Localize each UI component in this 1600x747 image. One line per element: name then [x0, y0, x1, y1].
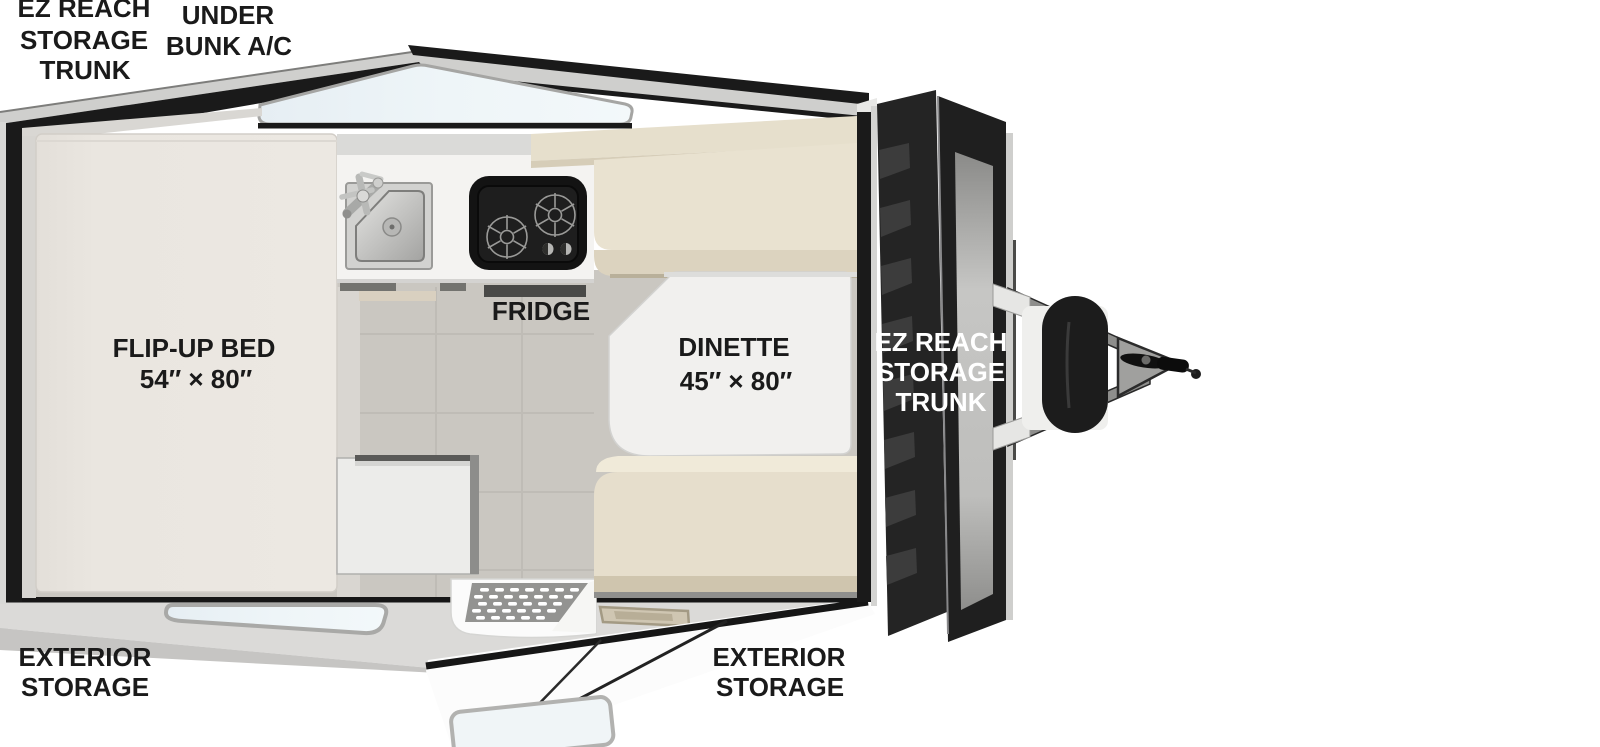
svg-text:STORAGE: STORAGE [20, 25, 148, 55]
svg-text:STORAGE: STORAGE [21, 672, 149, 702]
svg-text:EXTERIOR: EXTERIOR [713, 642, 846, 672]
svg-text:STORAGE: STORAGE [716, 672, 844, 702]
svg-text:45″ × 80″: 45″ × 80″ [680, 366, 792, 396]
svg-text:FRIDGE: FRIDGE [492, 296, 590, 326]
svg-text:BUNK A/C: BUNK A/C [166, 31, 292, 61]
svg-text:TRUNK: TRUNK [896, 387, 987, 417]
svg-text:EZ REACH: EZ REACH [18, 0, 151, 23]
svg-text:FLIP-UP BED: FLIP-UP BED [113, 333, 276, 363]
svg-text:DINETTE: DINETTE [678, 332, 789, 362]
svg-text:STORAGE: STORAGE [877, 357, 1005, 387]
svg-text:TRUNK: TRUNK [40, 55, 131, 85]
svg-text:UNDER: UNDER [182, 0, 275, 30]
svg-text:EZ REACH: EZ REACH [875, 327, 1008, 357]
svg-text:54″ × 80″: 54″ × 80″ [140, 364, 252, 394]
svg-text:EXTERIOR: EXTERIOR [19, 642, 152, 672]
